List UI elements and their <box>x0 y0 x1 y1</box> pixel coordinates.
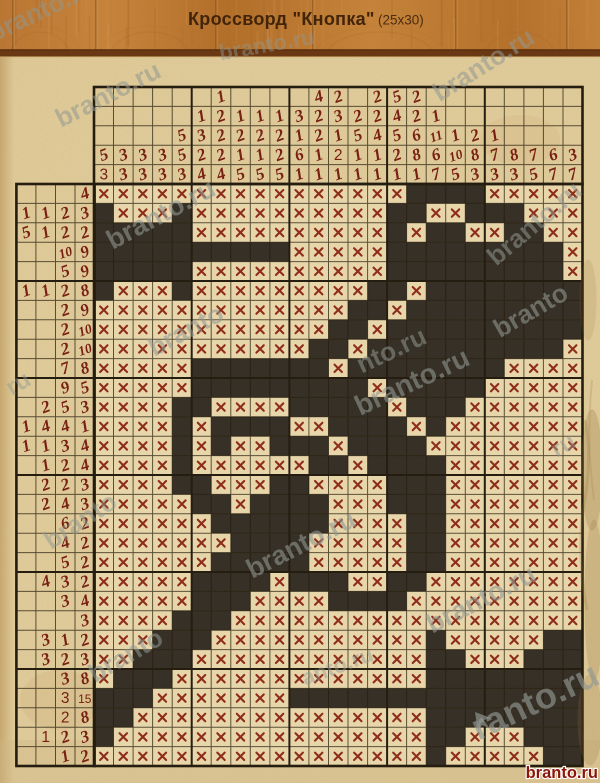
svg-text:branto.ru: branto.ru <box>526 764 598 782</box>
